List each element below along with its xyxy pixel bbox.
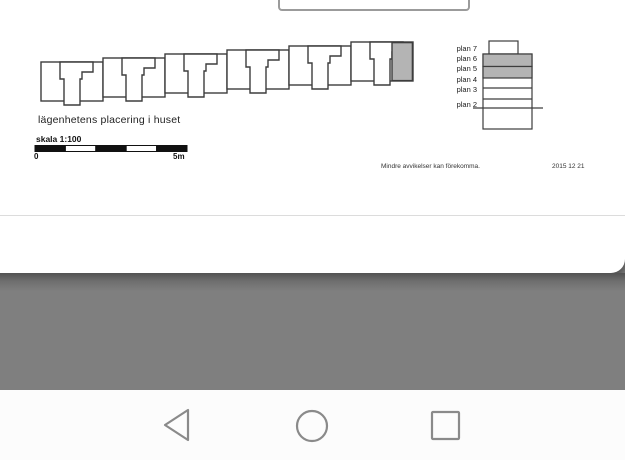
back-button[interactable] [155, 399, 199, 449]
floor-label-plan-2: plan 2 [442, 100, 477, 109]
elevation-tower [473, 41, 543, 129]
recents-square-icon [423, 399, 467, 449]
sheet-divider-line [0, 215, 625, 216]
scale-start-value: 0 [34, 152, 38, 161]
highlighted-apartment [392, 43, 412, 81]
tower-top-floor [489, 41, 518, 54]
drawing-caption: lägenhetens placering i huset [38, 114, 180, 126]
floor-label-plan-3: plan 3 [442, 85, 477, 94]
home-button[interactable] [290, 399, 334, 449]
android-navigation-bar [0, 390, 625, 460]
home-circle-icon [290, 399, 334, 449]
highlighted-floor-5 [483, 67, 532, 79]
scale-label: skala 1:100 [36, 134, 81, 144]
recents-button[interactable] [423, 399, 467, 449]
drawing-date: 2015 12 21 [552, 163, 585, 170]
scale-bar [35, 146, 187, 152]
disclaimer-note: Mindre avvikelser kan förekomma. [381, 163, 481, 170]
floor-label-plan-5: plan 5 [442, 64, 477, 73]
back-triangle-icon [155, 399, 199, 449]
highlighted-floor-6 [483, 54, 532, 67]
floor-label-plan-6: plan 6 [442, 54, 477, 63]
floor-plan-drawing [0, 0, 625, 273]
floor-label-plan-4: plan 4 [442, 75, 477, 84]
floor-label-plan-7: plan 7 [442, 44, 477, 53]
phone-screen: lägenhetens placering i huset skala 1:10… [0, 0, 625, 460]
gray-backdrop [0, 273, 625, 390]
building-floor-plan [41, 42, 413, 105]
scale-end-value: 5m [173, 152, 185, 161]
document-sheet: lägenhetens placering i huset skala 1:10… [0, 0, 625, 273]
